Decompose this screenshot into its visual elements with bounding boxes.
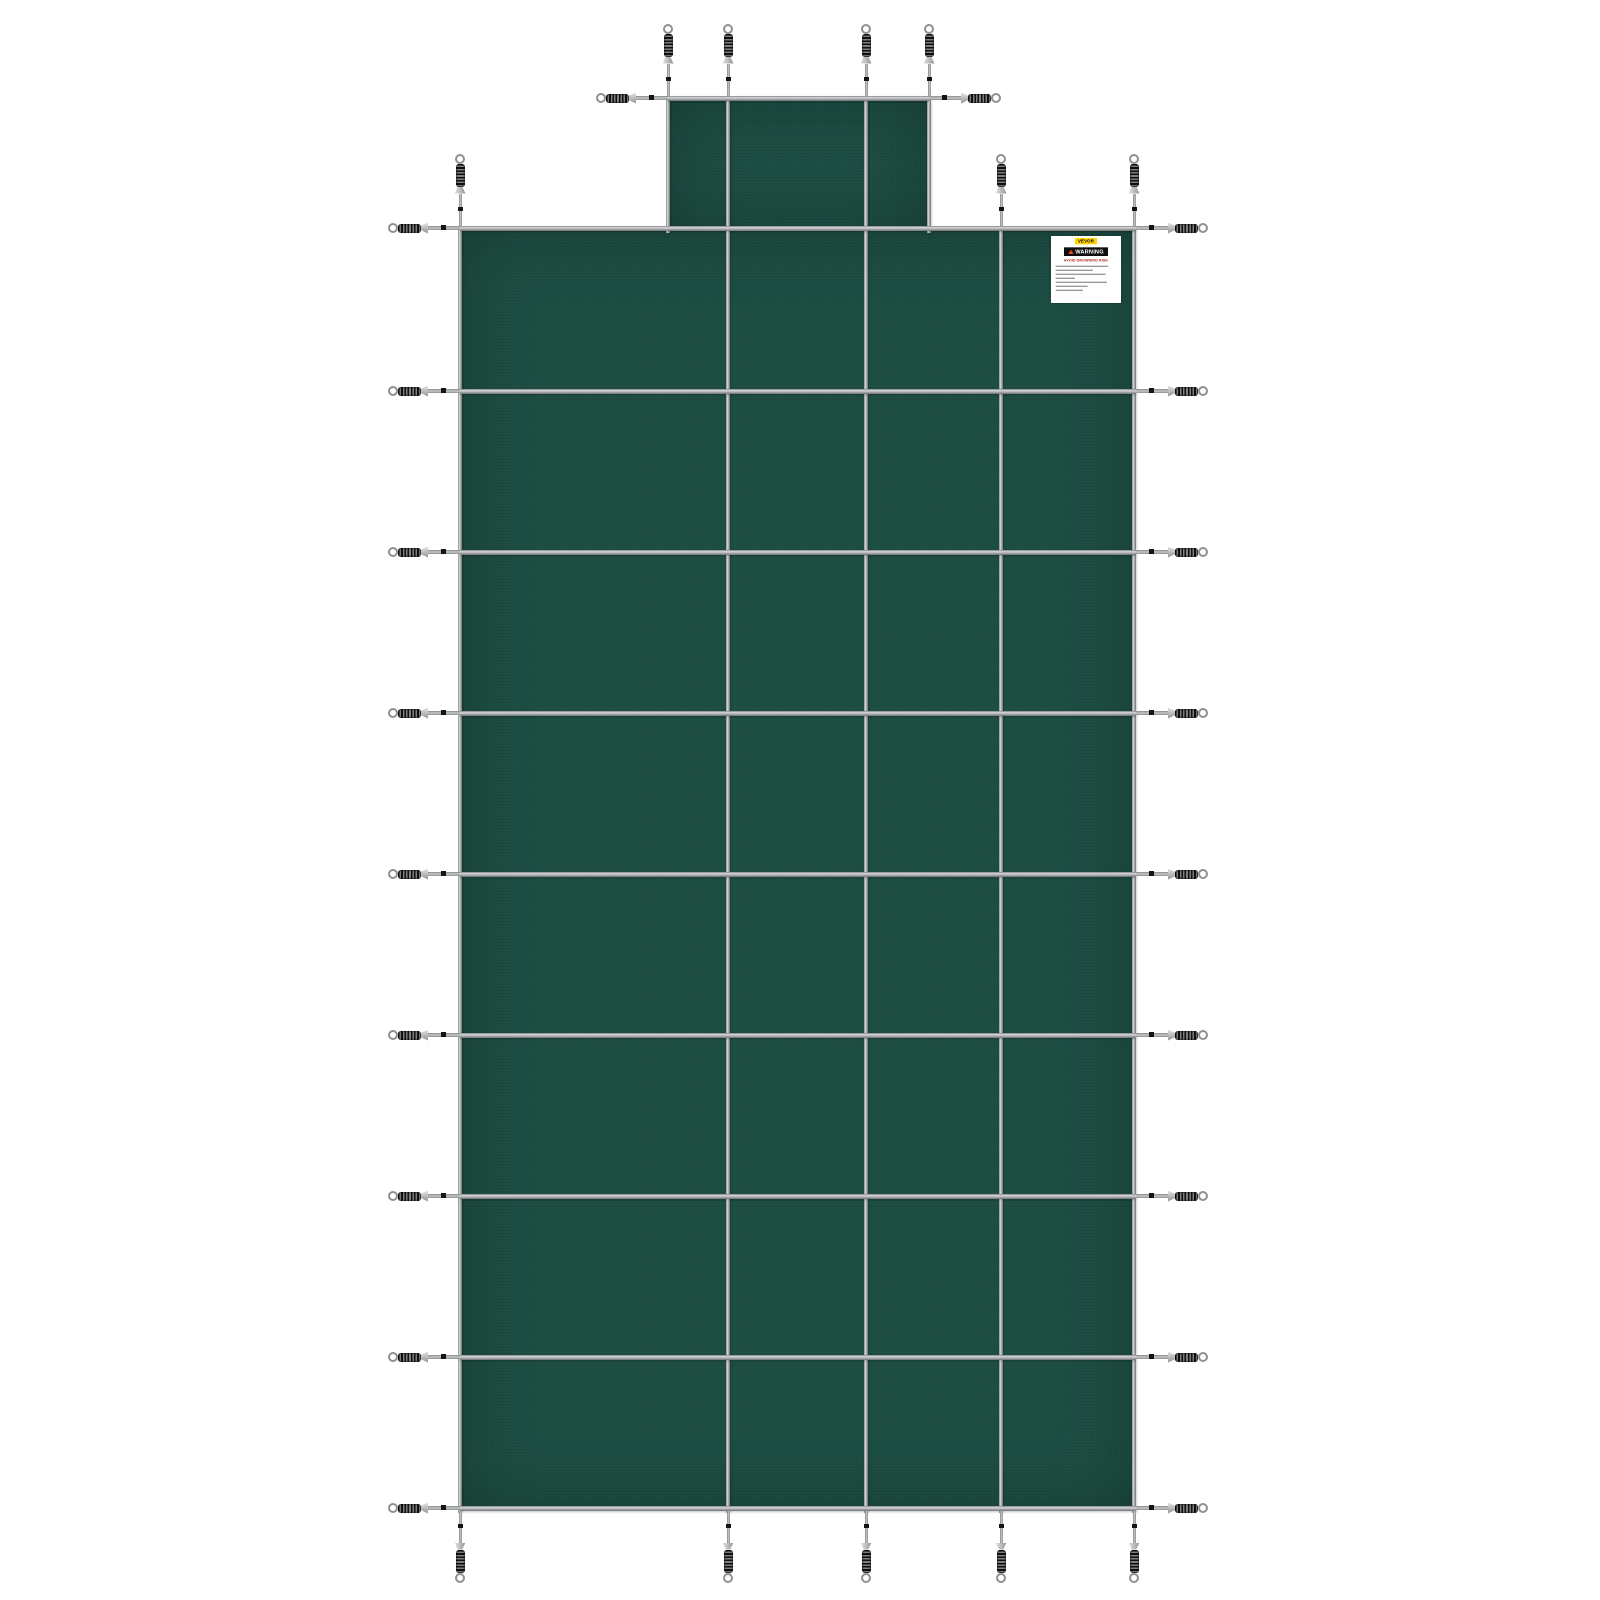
spring-coil [862, 34, 871, 57]
spring-loop-ring [388, 1030, 398, 1040]
spring-rod [865, 64, 868, 96]
spring-rod [428, 1033, 460, 1037]
h-strap [460, 1194, 1136, 1199]
spring-loop-ring [861, 1573, 871, 1583]
spring-coil [398, 1192, 421, 1201]
spring-coil [664, 34, 673, 57]
spring-rod [1136, 1506, 1168, 1510]
spring-coil [398, 548, 421, 557]
spring-collar [421, 547, 428, 558]
anchor-spring-right [1136, 223, 1208, 234]
anchor-spring-right [1136, 1191, 1208, 1202]
spring-collar [723, 1543, 734, 1550]
spring-rod [1000, 1511, 1003, 1543]
v-strap [999, 228, 1004, 1513]
spring-coil [398, 870, 421, 879]
spring-rod [928, 64, 931, 96]
spring-rod [428, 389, 460, 393]
spring-coil [1175, 387, 1198, 396]
spring-loop-ring [723, 24, 733, 34]
anchor-spring-left [596, 93, 668, 104]
spring-coil [862, 1550, 871, 1573]
anchor-spring-up [924, 24, 935, 96]
h-strap [460, 389, 1136, 394]
spring-coil [456, 1550, 465, 1573]
anchor-spring-down [1129, 1511, 1140, 1583]
anchor-spring-right [1136, 1030, 1208, 1041]
spring-collar [421, 1191, 428, 1202]
spring-collar [455, 1543, 466, 1550]
spring-collar [421, 1503, 428, 1514]
spring-rod [428, 1506, 460, 1510]
rod-adjuster-band [999, 207, 1004, 212]
rod-adjuster-band [1132, 1524, 1137, 1529]
spring-collar [421, 869, 428, 880]
spring-rod [428, 226, 460, 230]
h-strap [460, 226, 1136, 231]
rod-adjuster-band [458, 207, 463, 212]
anchor-spring-down [723, 1511, 734, 1583]
fine-print-line [1056, 274, 1106, 275]
warning-text: WARNING [1075, 248, 1104, 255]
anchor-spring-right [929, 93, 1001, 104]
spring-rod [636, 96, 668, 100]
rod-adjuster-band [1149, 1193, 1154, 1198]
spring-rod [1136, 550, 1168, 554]
anchor-spring-left [388, 547, 460, 558]
rod-adjuster-band [1149, 1505, 1154, 1510]
spring-collar [861, 1543, 872, 1550]
spring-coil [398, 224, 421, 233]
spring-rod [865, 1511, 868, 1543]
spring-rod [1136, 226, 1168, 230]
spring-loop-ring [388, 386, 398, 396]
spring-loop-ring [1198, 1352, 1208, 1362]
rod-adjuster-band [1149, 1354, 1154, 1359]
rod-adjuster-band [999, 1524, 1004, 1529]
spring-collar [1168, 386, 1175, 397]
rod-adjuster-band [864, 77, 869, 82]
spring-coil [398, 1504, 421, 1513]
spring-rod [428, 1194, 460, 1198]
spring-collar [421, 1352, 428, 1363]
spring-rod [1133, 194, 1136, 226]
spring-loop-ring [388, 1352, 398, 1362]
cover-step-panel [668, 98, 929, 232]
spring-loop-ring [996, 154, 1006, 164]
spring-collar [723, 57, 734, 64]
spring-rod [1000, 194, 1003, 226]
spring-collar [861, 57, 872, 64]
spring-coil [1130, 164, 1139, 187]
spring-coil [398, 1031, 421, 1040]
rod-adjuster-band [726, 77, 731, 82]
warning-label-body: VEVOR WARNING AVOID DROWNING RISK [1051, 236, 1121, 303]
spring-loop-ring [388, 1503, 398, 1513]
spring-collar [421, 1030, 428, 1041]
rod-adjuster-band [441, 1354, 446, 1359]
warning-triangle-icon [1068, 249, 1073, 253]
spring-loop-ring [1198, 708, 1208, 718]
fine-print-line [1056, 286, 1088, 287]
spring-coil [398, 387, 421, 396]
spring-collar [1129, 1543, 1140, 1550]
spring-rod [428, 711, 460, 715]
rod-adjuster-band [864, 1524, 869, 1529]
anchor-spring-right [1136, 547, 1208, 558]
spring-rod [1136, 872, 1168, 876]
rod-adjuster-band [441, 549, 446, 554]
v-strap [927, 98, 932, 233]
spring-collar [1168, 547, 1175, 558]
rod-adjuster-band [726, 1524, 731, 1529]
spring-coil [398, 1353, 421, 1362]
anchor-spring-right [1136, 1352, 1208, 1363]
spring-collar [421, 223, 428, 234]
spring-rod [727, 64, 730, 96]
spring-loop-ring [991, 93, 1001, 103]
rod-adjuster-band [1149, 225, 1154, 230]
rod-adjuster-band [441, 1193, 446, 1198]
spring-rod [667, 64, 670, 96]
spring-loop-ring [455, 154, 465, 164]
fine-print-line [1056, 270, 1093, 271]
spring-loop-ring [1198, 1503, 1208, 1513]
spring-coil [398, 709, 421, 718]
h-strap [460, 1033, 1136, 1038]
fine-print-line [1056, 282, 1107, 283]
spring-rod [1133, 1511, 1136, 1543]
spring-collar [1168, 1352, 1175, 1363]
fine-print-line [1056, 278, 1075, 279]
spring-rod [428, 1355, 460, 1359]
spring-rod [727, 1511, 730, 1543]
rod-adjuster-band [942, 95, 947, 100]
anchor-spring-left [388, 869, 460, 880]
spring-rod [1136, 1194, 1168, 1198]
anchor-spring-right [1136, 708, 1208, 719]
spring-coil [997, 164, 1006, 187]
anchor-spring-left [388, 1191, 460, 1202]
spring-coil [1175, 1192, 1198, 1201]
cover-main-panel [460, 228, 1136, 1510]
anchor-spring-up [663, 24, 674, 96]
warning-heading: AVOID DROWNING RISK [1064, 259, 1108, 263]
rod-adjuster-band [1132, 207, 1137, 212]
anchor-spring-right [1136, 869, 1208, 880]
rod-adjuster-band [666, 77, 671, 82]
v-strap [864, 98, 869, 1513]
spring-collar [1168, 1030, 1175, 1041]
spring-collar [1129, 187, 1140, 194]
spring-loop-ring [1198, 869, 1208, 879]
rod-adjuster-band [441, 388, 446, 393]
spring-collar [924, 57, 935, 64]
spring-loop-ring [388, 708, 398, 718]
rod-adjuster-band [441, 225, 446, 230]
spring-collar [996, 1543, 1007, 1550]
anchor-spring-down [455, 1511, 466, 1583]
spring-coil [968, 94, 991, 103]
spring-collar [1168, 1191, 1175, 1202]
spring-coil [1175, 224, 1198, 233]
spring-coil [1175, 1353, 1198, 1362]
spring-collar [629, 93, 636, 104]
warning-label: VEVOR WARNING AVOID DROWNING RISK [1051, 236, 1121, 303]
rod-adjuster-band [1149, 710, 1154, 715]
spring-coil [1175, 709, 1198, 718]
spring-collar [961, 93, 968, 104]
rod-adjuster-band [441, 710, 446, 715]
anchor-spring-down [996, 1511, 1007, 1583]
spring-rod [1136, 711, 1168, 715]
spring-loop-ring [723, 1573, 733, 1583]
anchor-spring-right [1136, 386, 1208, 397]
spring-coil [606, 94, 629, 103]
spring-coil [1130, 1550, 1139, 1573]
spring-collar [1168, 708, 1175, 719]
spring-collar [421, 708, 428, 719]
fine-print-line [1056, 266, 1109, 267]
anchor-spring-up [861, 24, 872, 96]
spring-coil [456, 164, 465, 187]
spring-collar [421, 386, 428, 397]
spring-coil [1175, 1031, 1198, 1040]
spring-coil [724, 1550, 733, 1573]
spring-loop-ring [1198, 386, 1208, 396]
h-strap [668, 96, 929, 101]
rod-adjuster-band [1149, 549, 1154, 554]
spring-loop-ring [388, 869, 398, 879]
anchor-spring-left [388, 223, 460, 234]
anchor-spring-up [996, 154, 1007, 226]
fine-print-block [1051, 266, 1121, 291]
spring-coil [724, 34, 733, 57]
h-strap [460, 550, 1136, 555]
spring-loop-ring [924, 24, 934, 34]
rod-adjuster-band [1149, 1032, 1154, 1037]
pool-safety-cover-product-image: VEVOR WARNING AVOID DROWNING RISK [0, 0, 1600, 1600]
spring-loop-ring [861, 24, 871, 34]
rod-adjuster-band [458, 1524, 463, 1529]
rod-adjuster-band [441, 871, 446, 876]
anchor-spring-up [723, 24, 734, 96]
rod-adjuster-band [1149, 388, 1154, 393]
spring-coil [997, 1550, 1006, 1573]
spring-rod [929, 96, 961, 100]
spring-rod [459, 194, 462, 226]
spring-rod [428, 872, 460, 876]
spring-rod [428, 550, 460, 554]
spring-collar [663, 57, 674, 64]
spring-collar [1168, 869, 1175, 880]
h-strap [460, 1506, 1136, 1511]
anchor-spring-up [1129, 154, 1140, 226]
brand-text: VEVOR [1078, 239, 1094, 244]
rod-adjuster-band [927, 77, 932, 82]
h-strap [460, 872, 1136, 877]
spring-loop-ring [663, 24, 673, 34]
rod-adjuster-band [1149, 871, 1154, 876]
brand-badge: VEVOR [1075, 238, 1097, 244]
rod-adjuster-band [441, 1032, 446, 1037]
rod-adjuster-band [441, 1505, 446, 1510]
spring-loop-ring [1129, 1573, 1139, 1583]
spring-collar [1168, 1503, 1175, 1514]
spring-rod [459, 1511, 462, 1543]
anchor-spring-left [388, 1030, 460, 1041]
v-strap [726, 98, 731, 1513]
spring-loop-ring [388, 1191, 398, 1201]
spring-loop-ring [455, 1573, 465, 1583]
anchor-spring-down [861, 1511, 872, 1583]
spring-coil [1175, 548, 1198, 557]
spring-loop-ring [1198, 547, 1208, 557]
spring-loop-ring [388, 223, 398, 233]
spring-rod [1136, 1355, 1168, 1359]
spring-collar [1168, 223, 1175, 234]
spring-coil [1175, 1504, 1198, 1513]
spring-rod [1136, 1033, 1168, 1037]
spring-loop-ring [596, 93, 606, 103]
spring-loop-ring [1198, 1191, 1208, 1201]
fine-print-line [1056, 290, 1083, 291]
rod-adjuster-band [649, 95, 654, 100]
spring-collar [455, 187, 466, 194]
h-strap [460, 1355, 1136, 1360]
spring-collar [996, 187, 1007, 194]
spring-rod [1136, 389, 1168, 393]
spring-loop-ring [1198, 1030, 1208, 1040]
spring-coil [1175, 870, 1198, 879]
v-strap [666, 98, 671, 233]
spring-coil [925, 34, 934, 57]
anchor-spring-right [1136, 1503, 1208, 1514]
spring-loop-ring [1198, 223, 1208, 233]
anchor-spring-up [455, 154, 466, 226]
h-strap [460, 711, 1136, 716]
spring-loop-ring [388, 547, 398, 557]
anchor-spring-left [388, 386, 460, 397]
warning-bar: WARNING [1064, 247, 1108, 256]
spring-loop-ring [1129, 154, 1139, 164]
spring-loop-ring [996, 1573, 1006, 1583]
anchor-spring-left [388, 708, 460, 719]
anchor-spring-left [388, 1352, 460, 1363]
anchor-spring-left [388, 1503, 460, 1514]
